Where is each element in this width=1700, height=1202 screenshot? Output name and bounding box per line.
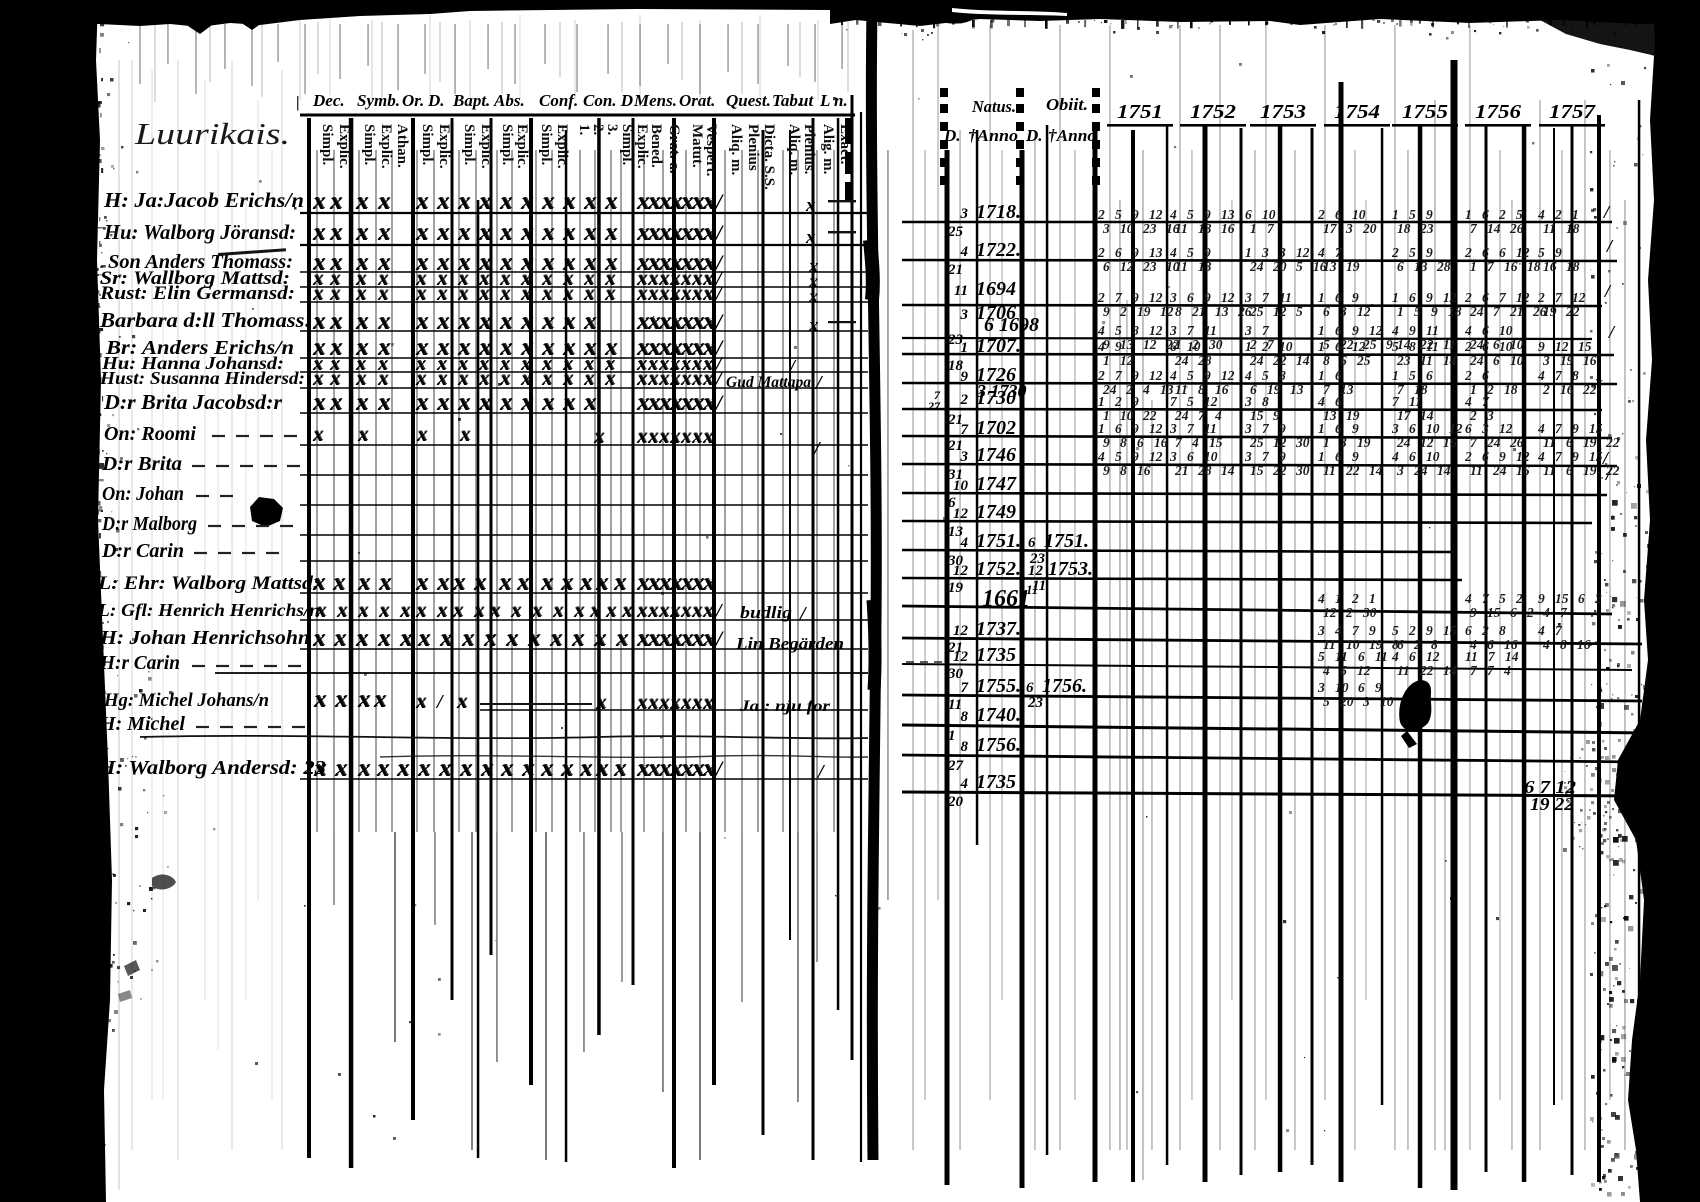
svg-text:1749: 1749 xyxy=(976,501,1016,523)
svg-text:Obiit.: Obiit. xyxy=(1046,95,1088,114)
svg-text:D:r Brita: D:r Brita xyxy=(101,453,182,475)
svg-text:1753.: 1753. xyxy=(1048,558,1093,580)
svg-text:1718.: 1718. xyxy=(976,201,1021,223)
svg-text:Natus.: Natus. xyxy=(971,97,1016,116)
svg-text:11816: 11816 xyxy=(1175,382,1229,397)
svg-text:458: 458 xyxy=(1244,368,1286,383)
svg-text:ut: ut xyxy=(799,91,814,110)
svg-text:2: 2 xyxy=(960,392,969,408)
svg-text:379: 379 xyxy=(1244,421,1286,436)
svg-text:25: 25 xyxy=(947,224,964,240)
svg-text:H: Johan Henrichsohn: H: Johan Henrichsohn xyxy=(99,627,310,649)
svg-text:9: 9 xyxy=(961,369,969,385)
svg-text:Mens.: Mens. xyxy=(633,91,677,110)
svg-text:Simpl.: Simpl. xyxy=(499,124,515,166)
svg-text:Alig. m.: Alig. m. xyxy=(820,124,836,175)
svg-text:3711: 3711 xyxy=(1169,323,1217,338)
svg-text:budlig: budlig xyxy=(740,603,793,622)
svg-text:1746: 1746 xyxy=(976,444,1016,466)
svg-text:27: 27 xyxy=(927,399,941,413)
svg-text:242214: 242214 xyxy=(1249,353,1310,368)
svg-text:20: 20 xyxy=(947,794,964,810)
svg-text:4: 4 xyxy=(960,776,969,792)
svg-text:On: Roomi: On: Roomi xyxy=(104,423,196,445)
svg-text:x: x xyxy=(416,690,427,712)
svg-text:3711: 3711 xyxy=(1169,421,1217,436)
svg-text:Simpl.: Simpl. xyxy=(538,124,554,166)
svg-text:4612: 4612 xyxy=(1322,663,1371,678)
svg-text:8: 8 xyxy=(961,709,969,725)
svg-text:156: 156 xyxy=(1392,368,1433,383)
svg-text:3.: 3. xyxy=(604,124,620,136)
svg-text:†Anno: †Anno xyxy=(968,126,1018,145)
svg-text:Aliq. m.: Aliq. m. xyxy=(786,124,802,176)
svg-text:1756.: 1756. xyxy=(1042,675,1087,697)
svg-text:Bened.: Bened. xyxy=(648,124,664,168)
svg-text:1.: 1. xyxy=(576,124,592,136)
svg-text:Con. D: Con. D xyxy=(583,91,633,110)
svg-text:23: 23 xyxy=(1027,695,1044,711)
svg-text:D:r Malborg: D:r Malborg xyxy=(101,513,197,535)
svg-text:19 22: 19 22 xyxy=(1530,794,1574,814)
svg-text:Plenius.: Plenius. xyxy=(801,124,817,175)
svg-text:Quest.: Quest. xyxy=(726,91,771,110)
svg-text:3610: 3610 xyxy=(1169,449,1218,464)
svg-text:H: Ja:Jacob Erichs/n: H: Ja:Jacob Erichs/n xyxy=(103,188,304,212)
svg-text:6: 6 xyxy=(1026,680,1034,696)
svg-text:Ja : nju for: Ja : nju for xyxy=(739,698,831,715)
svg-text:Rust: Elin Germansd:: Rust: Elin Germansd: xyxy=(99,283,295,304)
svg-text:2610: 2610 xyxy=(1464,339,1513,354)
svg-text:Explic.: Explic. xyxy=(378,124,394,169)
svg-text:1702: 1702 xyxy=(976,417,1016,439)
svg-text:19: 19 xyxy=(948,580,964,596)
svg-text:774: 774 xyxy=(1470,663,1511,678)
svg-text:Hg: Michel Johans/n: Hg: Michel Johans/n xyxy=(103,690,269,711)
svg-text:L: Gfl: Henrich Henrichs/n: L: Gfl: Henrich Henrichs/n xyxy=(97,600,320,620)
svg-text:Hu: Walborg Jöransd:: Hu: Walborg Jöransd: xyxy=(103,220,296,244)
svg-text:Conf.: Conf. xyxy=(539,91,578,110)
svg-text:Hust: Susanna Hindersd:: Hust: Susanna Hindersd: xyxy=(99,368,305,388)
svg-text:4911: 4911 xyxy=(1391,323,1439,338)
svg-text:4612: 4612 xyxy=(1391,649,1440,664)
svg-text:Simpl.: Simpl. xyxy=(361,124,377,166)
svg-text:259: 259 xyxy=(1391,245,1433,260)
svg-text:|: | xyxy=(296,94,300,111)
svg-text:H: Michel: H: Michel xyxy=(99,713,185,735)
svg-text:112214: 112214 xyxy=(1323,463,1383,478)
svg-text:1: 1 xyxy=(961,340,969,356)
svg-text:17320: 17320 xyxy=(1323,221,1377,236)
svg-text:Explic.: Explic. xyxy=(436,124,452,169)
svg-text:2712: 2712 xyxy=(1537,290,1586,305)
svg-text:2.: 2. xyxy=(590,124,606,136)
svg-text:421: 421 xyxy=(1537,207,1579,222)
svg-text:2610: 2610 xyxy=(1317,207,1366,222)
svg-text:169: 169 xyxy=(1318,290,1359,305)
svg-text:H:r Carin: H:r Carin xyxy=(99,652,180,674)
svg-text:Plenius: Plenius xyxy=(745,124,761,171)
svg-text:3: 3 xyxy=(960,449,969,465)
svg-text:D.: D. xyxy=(1025,126,1043,145)
svg-text:4610: 4610 xyxy=(1391,449,1440,464)
svg-text:24610: 24610 xyxy=(1469,337,1524,352)
svg-text:1753: 1753 xyxy=(1260,101,1306,123)
svg-text:6 1698: 6 1698 xyxy=(984,314,1039,336)
svg-text:12: 12 xyxy=(953,623,969,639)
svg-text:1757: 1757 xyxy=(1549,101,1596,123)
svg-text:12: 12 xyxy=(953,649,969,665)
svg-text:Vespert.: Vespert. xyxy=(703,124,719,177)
svg-text:4: 4 xyxy=(960,535,969,551)
svg-text:1752: 1752 xyxy=(1190,101,1236,123)
svg-text:1735: 1735 xyxy=(976,644,1016,666)
svg-text:4: 4 xyxy=(960,244,969,260)
svg-text:4816: 4816 xyxy=(1542,637,1591,652)
svg-text:Symb.: Symb. xyxy=(357,91,400,110)
svg-text:212814: 212814 xyxy=(1174,463,1235,478)
svg-text:D:r Brita Jacobsd:r: D:r Brita Jacobsd:r xyxy=(103,390,283,414)
svg-text:11714: 11714 xyxy=(1465,649,1519,664)
svg-text:Tab.: Tab. xyxy=(772,91,802,110)
svg-text:159: 159 xyxy=(1392,207,1433,222)
svg-text:Explic.: Explic. xyxy=(514,124,530,169)
svg-text:Explic.: Explic. xyxy=(336,124,352,169)
svg-text:8: 8 xyxy=(961,739,969,755)
svg-text:27: 27 xyxy=(947,758,964,774)
svg-text:1661: 1661 xyxy=(982,586,1030,612)
svg-text:628: 628 xyxy=(1465,623,1506,638)
svg-text:1752.: 1752. xyxy=(976,558,1021,580)
svg-text:Athan.: Athan. xyxy=(394,124,410,168)
svg-text:231114: 231114 xyxy=(1396,353,1457,368)
svg-text:1694: 1694 xyxy=(976,278,1016,300)
svg-text:112416: 112416 xyxy=(1470,463,1530,478)
svg-text:21: 21 xyxy=(947,262,963,278)
svg-text:112214: 112214 xyxy=(1397,663,1457,678)
svg-text:6: 6 xyxy=(1028,535,1036,551)
svg-text:x: x xyxy=(808,286,818,306)
svg-text:1707.: 1707. xyxy=(976,335,1021,357)
svg-text:1740.: 1740. xyxy=(976,704,1021,726)
svg-text:1755: 1755 xyxy=(1402,101,1448,123)
svg-text:Bapt.: Bapt. xyxy=(452,91,490,110)
svg-text:1722.: 1722. xyxy=(976,239,1021,261)
svg-text:3: 3 xyxy=(960,307,969,323)
svg-text:1751.: 1751. xyxy=(1044,530,1089,552)
svg-text:478: 478 xyxy=(1537,368,1579,383)
svg-text:Dec.: Dec. xyxy=(312,91,345,110)
svg-text:1756.: 1756. xyxy=(976,734,1021,756)
svg-text:†Anno: †Anno xyxy=(1048,126,1096,145)
svg-text:379: 379 xyxy=(1244,449,1286,464)
svg-text:1737.: 1737. xyxy=(976,618,1021,640)
svg-text:Explic.: Explic. xyxy=(554,124,570,169)
svg-text:3711: 3711 xyxy=(1244,290,1292,305)
svg-text:111316: 111316 xyxy=(1175,221,1235,236)
svg-text:1756: 1756 xyxy=(1475,101,1521,123)
svg-text:Or.: Or. xyxy=(402,91,424,110)
svg-text:12: 12 xyxy=(1028,563,1044,579)
svg-text:Matut.: Matut. xyxy=(689,124,705,168)
svg-text:Barbara d:ll Thomass:: Barbara d:ll Thomass: xyxy=(99,308,312,332)
svg-text:12: 12 xyxy=(953,506,969,522)
svg-text:169: 169 xyxy=(1318,421,1359,436)
svg-text:129: 129 xyxy=(1098,394,1139,409)
svg-text:x: x xyxy=(457,690,468,712)
svg-text:459: 459 xyxy=(1169,245,1211,260)
svg-text:Explic.: Explic. xyxy=(634,124,650,169)
svg-text:169: 169 xyxy=(1318,449,1359,464)
svg-text:x: x xyxy=(808,315,819,336)
svg-text:D:r Carin: D:r Carin xyxy=(101,540,184,562)
svg-text:3: 3 xyxy=(960,206,969,222)
svg-text:11: 11 xyxy=(1026,582,1038,597)
svg-text:Abs.: Abs. xyxy=(493,91,525,110)
svg-text:1751: 1751 xyxy=(1117,101,1163,123)
svg-text:1755.: 1755. xyxy=(976,675,1021,697)
svg-text:152230: 152230 xyxy=(1250,463,1310,478)
svg-text:L n.: L n. xyxy=(819,91,848,110)
svg-text:Simpl.: Simpl. xyxy=(461,124,477,166)
svg-text:Orat.: Orat. xyxy=(679,91,715,110)
svg-text:On: Johan: On: Johan xyxy=(102,483,184,505)
svg-text:1: 1 xyxy=(948,728,956,744)
svg-text:251230: 251230 xyxy=(1249,435,1310,450)
svg-text:H: Walborg Andersd: 23: H: Walborg Andersd: 23 xyxy=(97,757,326,779)
svg-text:Luurikais.: Luurikais. xyxy=(134,116,290,151)
svg-text:7: 7 xyxy=(961,422,969,438)
svg-text:12230: 12230 xyxy=(1323,605,1377,620)
svg-text:Simpl.: Simpl. xyxy=(619,124,635,166)
svg-text:Aliq. m.: Aliq. m. xyxy=(728,124,744,176)
svg-text:10: 10 xyxy=(953,478,969,494)
svg-text:D.: D. xyxy=(427,91,445,110)
svg-text:7: 7 xyxy=(961,680,969,696)
svg-text:Grat. a.: Grat. a. xyxy=(666,124,682,174)
svg-text:Simpl.: Simpl. xyxy=(319,124,335,166)
svg-text:24610: 24610 xyxy=(1469,353,1524,368)
svg-text:1751.: 1751. xyxy=(976,530,1021,552)
svg-text:1747: 1747 xyxy=(976,473,1017,495)
svg-text:11: 11 xyxy=(954,283,968,299)
svg-text:Lin Begärden: Lin Begärden xyxy=(735,634,844,653)
svg-text:4610: 4610 xyxy=(1464,323,1513,338)
svg-text:Simpl.: Simpl. xyxy=(419,124,435,166)
svg-text:Explic.: Explic. xyxy=(478,124,494,169)
svg-text:12: 12 xyxy=(953,563,969,579)
svg-text:241216: 241216 xyxy=(1396,435,1457,450)
svg-text:L: Ehr: Walborg Mattsd:: L: Ehr: Walborg Mattsd: xyxy=(97,573,320,594)
svg-text:1735: 1735 xyxy=(976,771,1016,793)
svg-text:Dicta. S.S.: Dicta. S.S. xyxy=(761,124,777,190)
svg-text:3 1730: 3 1730 xyxy=(976,381,1027,401)
